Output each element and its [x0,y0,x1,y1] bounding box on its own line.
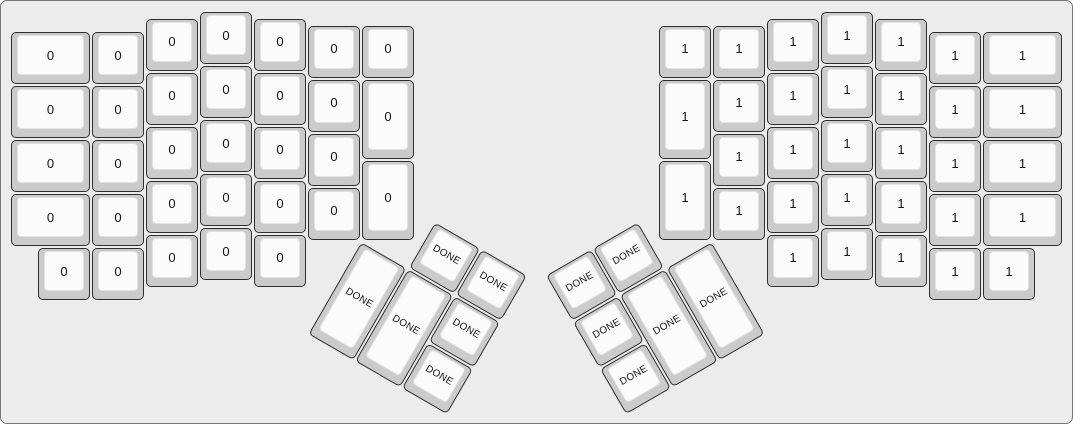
key-label: 0 [114,265,121,278]
keycap-surface: 1 [665,164,705,231]
key-right-main-20[interactable]: 1 [983,140,1062,192]
key-right-main-12[interactable]: 1 [929,86,981,138]
key-left-main-12[interactable]: 0 [308,80,360,132]
keycap-surface: 0 [260,184,300,224]
keycap-surface: 0 [206,69,246,109]
key-label: 0 [276,143,283,156]
key-label: 1 [789,197,796,210]
key-label: 1 [681,42,688,55]
key-left-main-30[interactable]: 0 [200,228,252,280]
key-label: 0 [222,245,229,258]
keycap-surface: 1 [773,184,813,224]
keycap-surface: 1 [719,191,759,231]
key-label: 0 [384,42,391,55]
key-left-main-15[interactable]: 0 [92,140,144,192]
keycap-surface: 0 [260,76,300,116]
keycap-surface: 1 [935,89,975,129]
key-label: DONE [423,364,454,388]
key-right-main-19[interactable]: 1 [929,140,981,192]
key-label: 0 [168,89,175,102]
key-label: 1 [1019,157,1026,170]
key-left-main-0[interactable]: 0 [11,32,90,84]
key-label: 1 [789,89,796,102]
key-label: 0 [330,42,337,55]
keycap-surface: 1 [773,22,813,62]
key-label: DONE [652,313,683,337]
keycap-surface: 1 [989,89,1056,129]
keycap-surface: 0 [206,231,246,271]
key-label: 0 [276,197,283,210]
key-label: 1 [1019,103,1026,116]
keycap-surface: DONE [466,255,521,310]
keycap-surface: 0 [314,29,354,69]
key-label: 0 [384,191,391,204]
key-right-main-30[interactable]: 1 [929,248,981,300]
key-label: 1 [789,251,796,264]
key-label: 1 [897,143,904,156]
key-label: 1 [681,110,688,123]
keycap-surface: 1 [989,251,1029,291]
keycap-surface: 0 [368,29,408,69]
key-label: 0 [168,197,175,210]
keycap-surface: 1 [827,177,867,217]
key-left-main-24[interactable]: 0 [200,174,252,226]
key-label: DONE [619,364,650,388]
keycap-surface: 0 [98,197,138,237]
key-left-main-4[interactable]: 0 [254,19,306,71]
keycap-surface: 0 [98,143,138,183]
keycap-surface: 0 [152,22,192,62]
key-label: 0 [47,103,54,116]
keycap-surface: 0 [206,177,246,217]
key-label: 1 [843,29,850,42]
key-label: 0 [222,83,229,96]
keycap-surface: 0 [152,130,192,170]
key-right-main-10[interactable]: 1 [821,66,873,118]
keycap-surface: 0 [17,89,84,129]
key-label: 0 [330,150,337,163]
key-right-main-27[interactable]: 1 [767,235,819,287]
key-label: 0 [168,35,175,48]
key-label: DONE [431,243,462,267]
keycap-surface: 0 [152,76,192,116]
keycap-surface: 0 [314,137,354,177]
key-label: 0 [276,35,283,48]
key-label: 0 [114,103,121,116]
key-left-main-31[interactable]: 0 [254,235,306,287]
key-right-main-16[interactable]: 1 [767,127,819,179]
key-right-main-6[interactable]: 1 [983,32,1062,84]
key-right-main-4[interactable]: 1 [875,19,927,71]
keycap-surface: 0 [314,83,354,123]
keycap-surface: 0 [98,251,138,291]
key-label: 0 [222,29,229,42]
key-label: 1 [789,35,796,48]
key-label: 1 [951,211,958,224]
key-label: 1 [897,251,904,264]
key-label: 0 [330,204,337,217]
key-right-main-5[interactable]: 1 [929,32,981,84]
key-right-main-0[interactable]: 1 [659,26,711,78]
key-left-main-9[interactable]: 0 [146,73,198,125]
key-left-main-8[interactable]: 0 [92,86,144,138]
key-label: 0 [168,251,175,264]
keyboard-layout-canvas: 0000000000000000000000000000000011111111… [0,0,1073,424]
key-label: 1 [789,143,796,156]
key-left-main-14[interactable]: 0 [11,140,90,192]
key-label: 1 [1019,49,1026,62]
key-left-main-16[interactable]: 0 [146,127,198,179]
key-label: DONE [592,317,623,341]
key-left-main-28[interactable]: 0 [92,248,144,300]
key-label: 1 [1019,211,1026,224]
key-left-main-23[interactable]: 0 [146,181,198,233]
keycap-surface: 1 [881,238,921,278]
key-label: DONE [565,270,596,294]
key-right-main-28[interactable]: 1 [821,228,873,280]
keycap-surface: 1 [827,15,867,55]
key-label: 0 [384,110,391,123]
keycap-surface: 1 [935,143,975,183]
keycap-surface: 0 [152,184,192,224]
key-label: DONE [611,243,642,267]
keycap-surface: 1 [773,238,813,278]
keycap-surface: 0 [260,22,300,62]
keycap-surface: 1 [773,130,813,170]
key-left-main-7[interactable]: 0 [11,86,90,138]
keycap-surface: 1 [881,76,921,116]
key-label: 1 [897,197,904,210]
keycap-surface: 1 [935,35,975,75]
key-label: 1 [951,49,958,62]
key-left-main-10[interactable]: 0 [200,66,252,118]
key-right-main-13[interactable]: 1 [983,86,1062,138]
key-left-main-1[interactable]: 0 [92,32,144,84]
keycap-surface: 0 [368,83,408,150]
key-label: 1 [951,265,958,278]
keycap-surface: 1 [989,143,1056,183]
key-right-main-29[interactable]: 1 [875,235,927,287]
key-left-main-18[interactable]: 0 [254,127,306,179]
key-label: 1 [843,137,850,150]
keycap-surface: DONE [553,255,608,310]
keycap-surface: 1 [773,76,813,116]
key-left-main-22[interactable]: 0 [92,194,144,246]
key-left-main-21[interactable]: 0 [11,194,90,246]
key-right-main-22[interactable]: 1 [767,181,819,233]
keycap-surface: 1 [719,83,759,123]
key-right-main-24[interactable]: 1 [875,181,927,233]
keycap-surface: 1 [881,184,921,224]
keycap-surface: DONE [600,228,655,283]
key-right-main-15[interactable]: 1 [713,134,765,186]
keycap-surface: 0 [17,35,84,75]
keycap-surface: 1 [881,22,921,62]
key-left-main-25[interactable]: 0 [254,181,306,233]
key-right-main-14[interactable]: 1 [659,161,711,240]
keycap-surface: 0 [260,130,300,170]
keycap-surface: 0 [17,143,84,183]
key-label: 0 [47,49,54,62]
keycap-surface: 0 [260,238,300,278]
key-label: 1 [951,103,958,116]
keycap-surface: 1 [881,130,921,170]
keycap-surface: 1 [989,35,1056,75]
key-left-main-3[interactable]: 0 [200,12,252,64]
key-label: 1 [843,245,850,258]
key-label: 1 [735,150,742,163]
key-label: 0 [60,265,67,278]
key-right-main-9[interactable]: 1 [767,73,819,125]
key-label: 1 [843,83,850,96]
key-left-main-13[interactable]: 0 [362,80,414,159]
keycap-surface: 1 [935,197,975,237]
keycap-surface: DONE [419,228,474,283]
keycap-surface: 1 [827,123,867,163]
keycap-surface: 1 [827,231,867,271]
key-label: 0 [47,211,54,224]
key-label: 1 [897,89,904,102]
keycap-surface: 0 [368,164,408,231]
keycap-surface: 1 [665,83,705,150]
key-right-main-7[interactable]: 1 [659,80,711,159]
key-label: 1 [735,42,742,55]
key-label: 1 [735,204,742,217]
key-label: 0 [276,89,283,102]
key-right-main-1[interactable]: 1 [713,26,765,78]
keycap-surface: 1 [719,137,759,177]
keycap-surface: 0 [98,35,138,75]
key-left-main-5[interactable]: 0 [308,26,360,78]
key-right-main-17[interactable]: 1 [821,120,873,172]
key-label: 0 [168,143,175,156]
key-label: 0 [114,157,121,170]
keycap-surface: 0 [17,197,84,237]
key-label: 0 [330,96,337,109]
key-label: DONE [343,286,374,310]
keycap-surface: 0 [206,123,246,163]
key-label: 0 [276,251,283,264]
keycap-surface: 1 [665,29,705,69]
key-left-main-20[interactable]: 0 [362,161,414,240]
key-label: 0 [114,211,121,224]
key-right-main-21[interactable]: 1 [713,188,765,240]
keycap-surface: 1 [935,251,975,291]
key-label: 1 [681,191,688,204]
key-right-main-2[interactable]: 1 [767,19,819,71]
key-label: 0 [47,157,54,170]
key-label: DONE [699,286,730,310]
keycap-surface: 0 [152,238,192,278]
keycap-surface: 1 [827,69,867,109]
key-label: 0 [222,137,229,150]
key-left-main-19[interactable]: 0 [308,134,360,186]
key-right-main-26[interactable]: 1 [983,194,1062,246]
key-right-main-18[interactable]: 1 [875,127,927,179]
keycap-surface: 0 [314,191,354,231]
key-label: 0 [222,191,229,204]
key-right-main-11[interactable]: 1 [875,73,927,125]
key-right-main-23[interactable]: 1 [821,174,873,226]
keycap-surface: 1 [989,197,1056,237]
key-left-main-2[interactable]: 0 [146,19,198,71]
keycap-surface: 0 [98,89,138,129]
key-right-main-8[interactable]: 1 [713,80,765,132]
key-right-main-25[interactable]: 1 [929,194,981,246]
key-left-main-26[interactable]: 0 [308,188,360,240]
key-left-main-6[interactable]: 0 [362,26,414,78]
key-label: DONE [390,313,421,337]
key-label: 1 [1005,265,1012,278]
key-label: 0 [114,49,121,62]
key-left-main-29[interactable]: 0 [146,235,198,287]
key-label: 1 [897,35,904,48]
key-label: 1 [843,191,850,204]
keycap-surface: 1 [719,29,759,69]
key-label: 1 [951,157,958,170]
keycap-surface: 0 [206,15,246,55]
key-right-main-3[interactable]: 1 [821,12,873,64]
key-left-main-11[interactable]: 0 [254,73,306,125]
key-label: DONE [450,317,481,341]
key-left-main-17[interactable]: 0 [200,120,252,172]
key-right-main-31[interactable]: 1 [983,248,1035,300]
keycap-surface: 0 [44,251,84,291]
key-left-main-27[interactable]: 0 [38,248,90,300]
key-label: DONE [477,270,508,294]
key-label: 1 [735,96,742,109]
